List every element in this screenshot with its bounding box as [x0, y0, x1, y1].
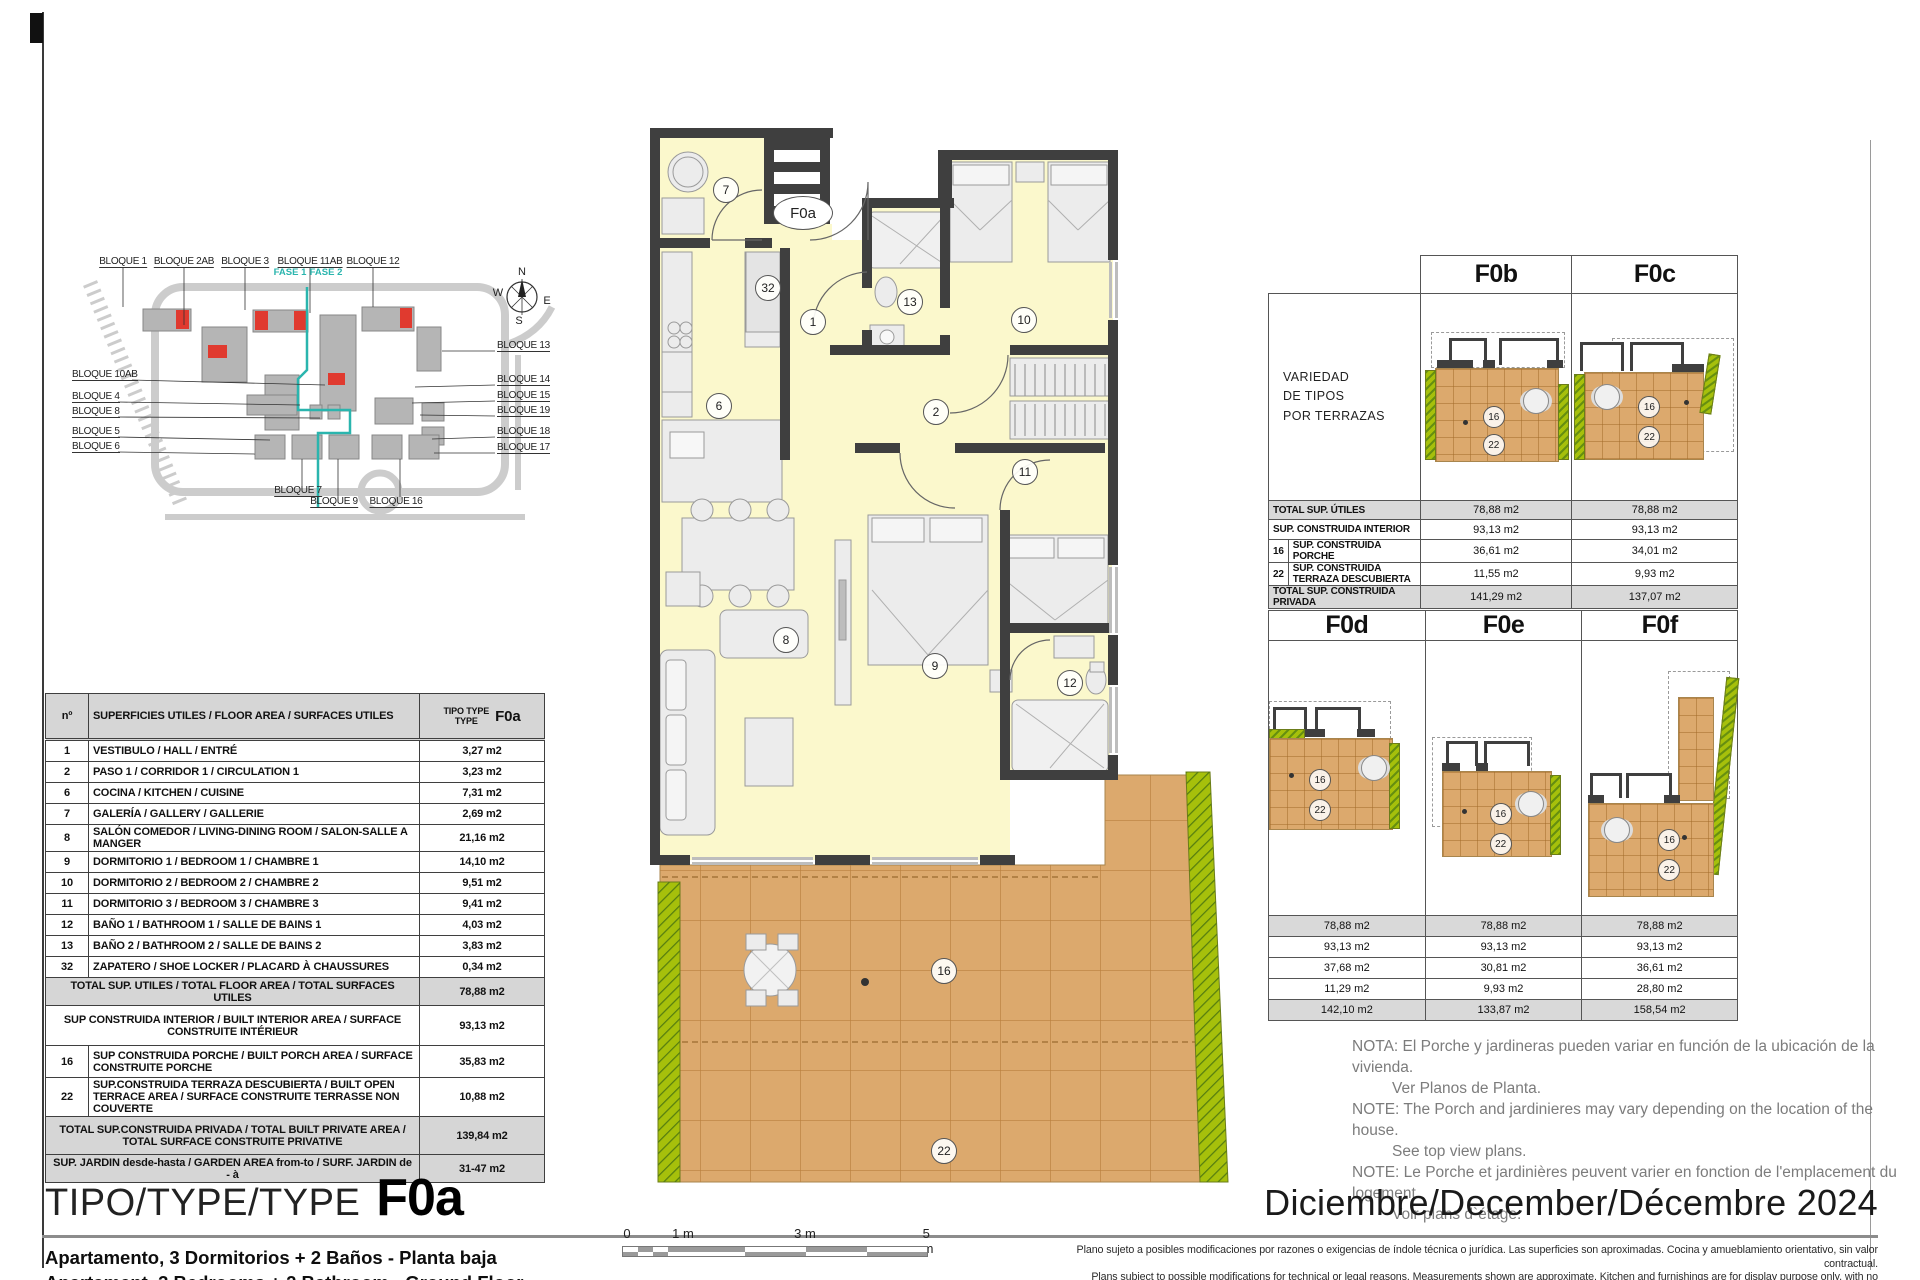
mini-room: [1580, 342, 1624, 371]
row-desc: DORMITORIO 2 / BEDROOM 2 / CHAMBRE 2: [89, 873, 420, 894]
mini-planter: [1389, 743, 1400, 829]
row-num: 13: [46, 936, 89, 957]
room-number-2: 2: [923, 399, 949, 425]
subtitle-en: Apartament, 3 Bedrooms + 2 Bathroom - Gr…: [45, 1271, 603, 1280]
variant-row-num: 16: [1273, 540, 1289, 562]
variant-header-f0c: F0c: [1572, 256, 1738, 294]
variant-value: 78,88 m2: [1425, 916, 1582, 937]
mini-wall: [1547, 360, 1563, 368]
variant-value: 141,29 m2: [1420, 586, 1572, 609]
mini-wall: [1664, 795, 1680, 803]
total-privada-value: 139,84 m2: [420, 1117, 545, 1155]
row-val: 9,41 m2: [420, 894, 545, 915]
variant-value: 93,13 m2: [1582, 937, 1738, 958]
mini-terrace: [1588, 803, 1714, 897]
sheet-corner-mark: [30, 13, 43, 43]
plan-sheet: BLOQUE 1 BLOQUE 2AB BLOQUE 3 BLOQUE 11AB…: [0, 0, 1920, 1280]
variant-value: 9,93 m2: [1425, 979, 1582, 1000]
room-number-6: 6: [706, 393, 732, 419]
row-num: 7: [46, 804, 89, 825]
row-val: 7,31 m2: [420, 783, 545, 804]
room-number-16: 16: [931, 958, 957, 984]
compass-e: E: [543, 295, 550, 307]
variant-value: 78,88 m2: [1572, 501, 1738, 520]
mini-planter: [1550, 775, 1561, 855]
variant-value: 11,55 m2: [1420, 563, 1572, 586]
mini-planter: [1425, 370, 1436, 460]
row-num: 6: [46, 783, 89, 804]
fase-2-label: FASE 2: [310, 267, 343, 278]
row-val: 4,03 m2: [420, 915, 545, 936]
nota-line: See top view plans.: [1352, 1141, 1897, 1162]
total-privada-label: TOTAL SUP.CONSTRUIDA PRIVADA / TOTAL BUI…: [46, 1117, 420, 1155]
mini-wall: [1476, 763, 1488, 771]
variant-value: 93,13 m2: [1269, 937, 1426, 958]
variant-value: 78,88 m2: [1420, 501, 1572, 520]
variant-value: 36,61 m2: [1420, 540, 1572, 563]
mini-wall: [1303, 729, 1325, 737]
room-number-22: 22: [931, 1138, 957, 1164]
variant-plan-f0c: 16 22: [1572, 294, 1738, 501]
scale-label-1m: 1 m: [672, 1226, 694, 1241]
mini-terrace: [1269, 738, 1393, 830]
variant-value: 78,88 m2: [1269, 916, 1426, 937]
compass-n: N: [518, 266, 526, 278]
issue-date: Diciembre/December/Décembre 2024: [1264, 1182, 1878, 1224]
row-desc: VESTIBULO / HALL / ENTRÉ: [89, 740, 420, 762]
variant-plan-f0d: 16 22: [1269, 641, 1426, 916]
sheet-left-edge: [42, 12, 44, 1268]
variant-value: 78,88 m2: [1582, 916, 1738, 937]
site-plan-label: BLOQUE 10AB: [72, 369, 138, 381]
row-desc: ZAPATERO / SHOE LOCKER / PLACARD À CHAUS…: [89, 957, 420, 978]
mini-porch-num: 16: [1309, 769, 1331, 791]
room-number-8: 8: [773, 627, 799, 653]
site-plan-label: BLOQUE 1: [99, 256, 147, 268]
site-plan-label: BLOQUE 17: [497, 442, 550, 454]
row-desc: DORMITORIO 3 / BEDROOM 3 / CHAMBRE 3: [89, 894, 420, 915]
row-num: 1: [46, 740, 89, 762]
variant-value: 133,87 m2: [1425, 1000, 1582, 1021]
mini-dot: [1289, 773, 1294, 778]
row-num: 8: [46, 825, 89, 852]
mini-wall: [1437, 360, 1473, 368]
site-plan-label: BLOQUE 14: [497, 374, 550, 386]
variant-value: 142,10 m2: [1269, 1000, 1426, 1021]
room-number-1: 1: [800, 309, 826, 335]
variant-row-text: SUP. CONSTRUIDA TERRAZA DESCUBIERTA: [1293, 563, 1416, 585]
row-num: 9: [46, 852, 89, 873]
scale-bar-graphic: [622, 1246, 928, 1257]
row-val: 9,51 m2: [420, 873, 545, 894]
area-table-header-type: TIPO TYPE TYPE F0a: [420, 694, 545, 740]
area-table: nº SUPERFICIES UTILES / FLOOR AREA / SUR…: [45, 693, 545, 1183]
planter-left: [658, 882, 680, 1182]
room-number-12: 12: [1057, 670, 1083, 696]
subtitle-es: Apartamento, 3 Dormitorios + 2 Baños - P…: [45, 1246, 603, 1271]
site-plan-label: BLOQUE 15: [497, 390, 550, 402]
site-plan-label: BLOQUE 8: [72, 406, 120, 418]
site-plan-label: BLOQUE 18: [497, 426, 550, 438]
row-val: 14,10 m2: [420, 852, 545, 873]
title-row: TIPO/TYPE/TYPE F0a: [45, 1168, 463, 1228]
disclaimer-en: Plans subject to possible modifications …: [1038, 1271, 1878, 1280]
row-desc: GALERÍA / GALLERY / GALLERIE: [89, 804, 420, 825]
total-utiles-label: TOTAL SUP. UTILES / TOTAL FLOOR AREA / T…: [46, 978, 420, 1006]
tipo-line2: TYPE: [455, 716, 478, 726]
row-num: 10: [46, 873, 89, 894]
tipo-line1: TIPO TYPE: [443, 706, 489, 716]
variant-header-f0e: F0e: [1425, 611, 1582, 641]
row-val: 3,83 m2: [420, 936, 545, 957]
mini-wall: [1442, 763, 1460, 771]
variant-value: 9,93 m2: [1572, 563, 1738, 586]
construida-interior-label: SUP CONSTRUIDA INTERIOR / BUILT INTERIOR…: [46, 1006, 420, 1046]
scale-bar: 0 1 m 3 m 5 m: [622, 1226, 928, 1262]
row-num: 2: [46, 762, 89, 783]
variedad-note: VARIEDAD DE TIPOS POR TERRAZAS: [1269, 294, 1421, 501]
variant-row-label: TOTAL SUP. ÚTILES: [1269, 501, 1421, 520]
variant-value: 93,13 m2: [1572, 520, 1738, 540]
variant-row-label: 22SUP. CONSTRUIDA TERRAZA DESCUBIERTA: [1269, 563, 1421, 586]
room-number-11: 11: [1012, 459, 1038, 485]
variants-table-bottom: F0d F0e F0f 16 22: [1268, 610, 1738, 1021]
mini-dot: [1462, 809, 1467, 814]
row-val: 2,69 m2: [420, 804, 545, 825]
site-plan-label: BLOQUE 12: [347, 256, 400, 268]
row-desc: PASO 1 / CORRIDOR 1 / CIRCULATION 1: [89, 762, 420, 783]
site-plan-label: BLOQUE 4: [72, 391, 120, 403]
row-val: 3,27 m2: [420, 740, 545, 762]
row-num: 32: [46, 957, 89, 978]
mini-terrace: [1678, 697, 1714, 801]
room-number-7: 7: [713, 177, 739, 203]
nota-line: NOTA: El Porche y jardineras pueden vari…: [1352, 1036, 1897, 1078]
legal-disclaimer: Plano sujeto a posibles modificaciones p…: [1038, 1244, 1878, 1280]
area-table-header-num: nº: [46, 694, 89, 740]
variant-value: 28,80 m2: [1582, 979, 1738, 1000]
area-table-header-desc: SUPERFICIES UTILES / FLOOR AREA / SURFAC…: [89, 694, 420, 740]
porche-value: 35,83 m2: [420, 1046, 545, 1078]
compass-w: W: [493, 287, 503, 299]
variant-plan-f0e: 16 22: [1425, 641, 1582, 916]
mini-terrace-num: 22: [1309, 799, 1331, 821]
nota-line: NOTE: The Porch and jardinieres may vary…: [1352, 1099, 1897, 1141]
construida-interior-value: 93,13 m2: [420, 1006, 545, 1046]
row-desc: COCINA / KITCHEN / CUISINE: [89, 783, 420, 804]
variants-table-top: F0b F0c VARIEDAD DE TIPOS POR TERRAZAS: [1268, 255, 1738, 609]
variant-value: 11,29 m2: [1269, 979, 1426, 1000]
mini-room: [1484, 741, 1530, 766]
disclaimer-es: Plano sujeto a posibles modificaciones p…: [1038, 1244, 1878, 1271]
row-desc: BAÑO 1 / BATHROOM 1 / SALLE DE BAINS 1: [89, 915, 420, 936]
mini-wall: [1357, 729, 1375, 737]
type-title-label: TIPO/TYPE/TYPE: [45, 1182, 360, 1225]
site-plan-label: BLOQUE 3: [221, 256, 269, 268]
mini-wall: [1483, 360, 1495, 368]
porche-num: 16: [46, 1046, 89, 1078]
bottom-divider: [42, 1235, 1878, 1238]
mini-dot: [1463, 420, 1468, 425]
row-val: 3,23 m2: [420, 762, 545, 783]
variedad-line: VARIEDAD: [1283, 368, 1416, 387]
nota-line: Ver Planos de Planta.: [1352, 1078, 1897, 1099]
site-plan-label: BLOQUE 2AB: [154, 256, 214, 268]
total-utiles-value: 78,88 m2: [420, 978, 545, 1006]
variant-row-label: SUP. CONSTRUIDA INTERIOR: [1269, 520, 1421, 540]
row-num: 11: [46, 894, 89, 915]
site-plan-label: BLOQUE 19: [497, 405, 550, 417]
variant-header-f0f: F0f: [1582, 611, 1738, 641]
mini-planter: [1558, 384, 1569, 460]
mini-wall: [1588, 795, 1604, 803]
tipo-code: F0a: [495, 708, 520, 725]
mini-porch-num: 16: [1483, 406, 1505, 428]
site-plan-label: BLOQUE 6: [72, 441, 120, 453]
variant-row-label: 16SUP. CONSTRUIDA PORCHE: [1269, 540, 1421, 563]
variant-plan-f0b: 16 22: [1420, 294, 1572, 501]
row-desc: SALÓN COMEDOR / LIVING-DINING ROOM / SAL…: [89, 825, 420, 852]
subtitle-block: Apartamento, 3 Dormitorios + 2 Baños - P…: [45, 1246, 603, 1280]
row-desc: BAÑO 2 / BATHROOM 2 / SALLE DE BAINS 2: [89, 936, 420, 957]
row-desc: DORMITORIO 1 / BEDROOM 1 / CHAMBRE 1: [89, 852, 420, 873]
mini-table-icon: [1518, 791, 1544, 817]
row-val: 21,16 m2: [420, 825, 545, 852]
variant-value: 37,68 m2: [1269, 958, 1426, 979]
type-title-code: F0a: [376, 1168, 463, 1228]
site-plan: BLOQUE 1 BLOQUE 2AB BLOQUE 3 BLOQUE 11AB…: [70, 255, 570, 535]
variant-plan-f0f: 16 22: [1582, 641, 1738, 916]
variant-row-text: SUP. CONSTRUIDA PORCHE: [1293, 540, 1416, 562]
variant-value: 36,61 m2: [1582, 958, 1738, 979]
mini-table-icon: [1523, 388, 1549, 414]
row-num: 12: [46, 915, 89, 936]
site-plan-label: BLOQUE 16: [370, 496, 423, 508]
variant-row-num: 22: [1273, 563, 1289, 585]
compass-s: S: [515, 315, 522, 327]
variedad-line: POR TERRAZAS: [1283, 407, 1416, 426]
floor-plan: F0a 7 32 1 13 10 6 2 11 8 9 12 16 22: [650, 120, 1230, 1195]
room-number-13: 13: [897, 289, 923, 315]
variant-value: 158,54 m2: [1582, 1000, 1738, 1021]
scale-label-3m: 3 m: [794, 1226, 816, 1241]
fase-1-label: FASE 1: [274, 267, 307, 278]
room-number-9: 9: [922, 653, 948, 679]
site-buildings: [143, 307, 444, 459]
mini-terrace-num: 22: [1483, 434, 1505, 456]
variant-header-f0d: F0d: [1269, 611, 1426, 641]
room-number-32: 32: [755, 275, 781, 301]
mini-terrace-num: 22: [1490, 833, 1512, 855]
terraza-value: 10,88 m2: [420, 1078, 545, 1117]
row-val: 0,34 m2: [420, 957, 545, 978]
mini-porch-num: 16: [1490, 803, 1512, 825]
mini-planter: [1574, 374, 1585, 460]
site-plan-label: BLOQUE 5: [72, 426, 120, 438]
terraza-label: SUP.CONSTRUIDA TERRAZA DESCUBIERTA / BUI…: [89, 1078, 420, 1117]
site-plan-label: BLOQUE 13: [497, 340, 550, 352]
mini-wall: [1672, 364, 1704, 372]
variant-value: 30,81 m2: [1425, 958, 1582, 979]
unit-type-bubble: F0a: [773, 196, 833, 230]
scale-label-0: 0: [623, 1226, 630, 1241]
variant-value: 93,13 m2: [1425, 937, 1582, 958]
porche-label: SUP CONSTRUIDA PORCHE / BUILT PORCH AREA…: [89, 1046, 420, 1078]
variedad-line: DE TIPOS: [1283, 387, 1416, 406]
terraza-num: 22: [46, 1078, 89, 1117]
room-number-10: 10: [1011, 307, 1037, 333]
variant-value: 93,13 m2: [1420, 520, 1572, 540]
variant-value: 34,01 m2: [1572, 540, 1738, 563]
compass-icon: [507, 279, 537, 315]
site-plan-label: BLOQUE 9: [310, 496, 358, 508]
mini-table-icon: [1361, 755, 1387, 781]
variant-value: 137,07 m2: [1572, 586, 1738, 609]
variant-header-f0b: F0b: [1420, 256, 1572, 294]
variant-row-label: TOTAL SUP. CONSTRUIDA PRIVADA: [1269, 586, 1421, 609]
